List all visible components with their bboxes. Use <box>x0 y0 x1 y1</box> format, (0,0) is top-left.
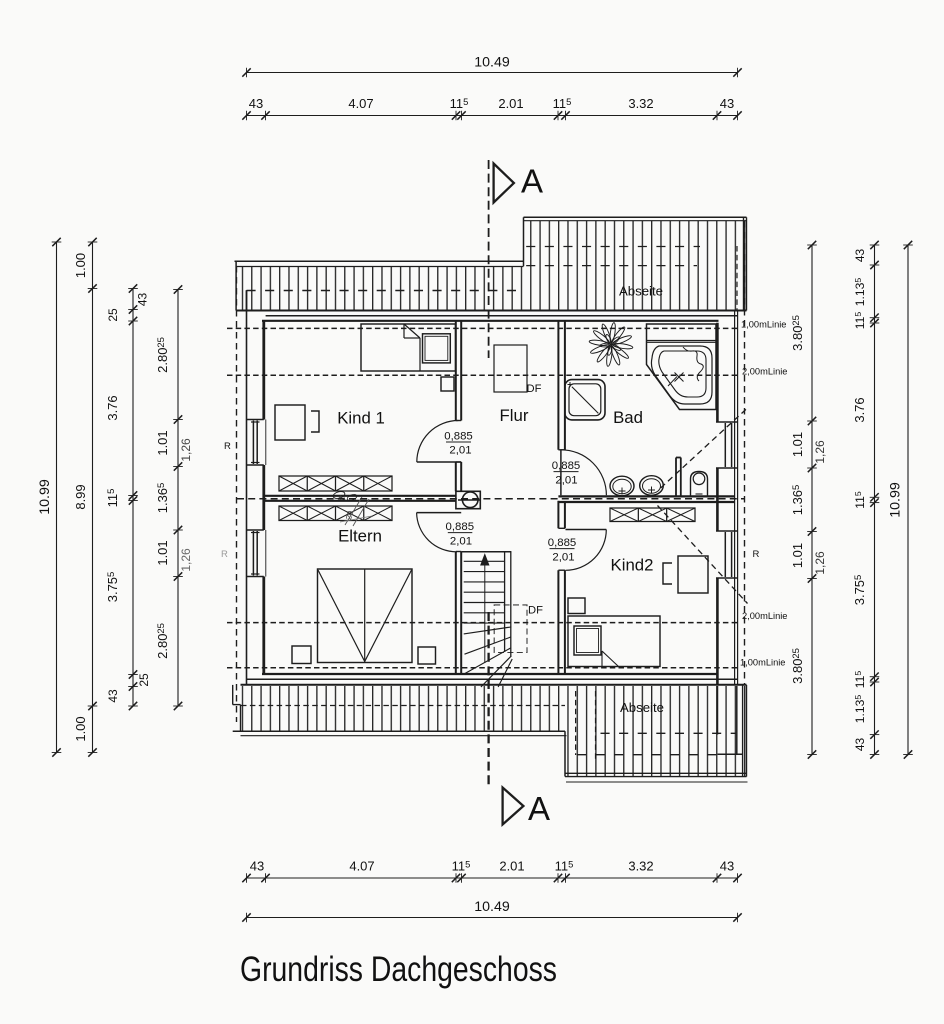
svg-text:1,00mLinie: 1,00mLinie <box>740 658 785 668</box>
svg-text:1,26: 1,26 <box>813 551 827 575</box>
svg-text:2,01: 2,01 <box>450 535 472 547</box>
svg-text:0,885: 0,885 <box>446 521 475 533</box>
svg-text:DF: DF <box>527 383 542 395</box>
svg-text:A: A <box>521 163 543 200</box>
svg-text:43: 43 <box>720 859 734 874</box>
svg-text:Grundriss Dachgeschoss: Grundriss Dachgeschoss <box>240 950 557 989</box>
svg-text:0,885: 0,885 <box>552 460 581 472</box>
svg-text:R: R <box>224 441 231 452</box>
svg-text:2.01: 2.01 <box>498 96 523 111</box>
svg-text:0,885: 0,885 <box>548 537 577 549</box>
svg-text:1.01: 1.01 <box>155 540 170 565</box>
svg-text:1.00: 1.00 <box>73 253 88 278</box>
svg-text:R: R <box>753 549 760 560</box>
svg-text:3.32: 3.32 <box>628 859 653 874</box>
svg-text:Flur: Flur <box>500 406 529 425</box>
svg-text:1.01: 1.01 <box>155 430 170 455</box>
svg-text:43: 43 <box>250 859 264 874</box>
svg-text:Bad: Bad <box>613 408 643 427</box>
svg-text:25: 25 <box>137 673 151 687</box>
svg-text:25: 25 <box>106 308 120 322</box>
svg-text:DF: DF <box>528 605 543 617</box>
svg-text:43: 43 <box>249 96 263 111</box>
svg-text:10.49: 10.49 <box>474 55 510 71</box>
svg-text:1,00mLinie: 1,00mLinie <box>741 320 786 330</box>
svg-text:1,26: 1,26 <box>813 440 827 464</box>
svg-text:1.01: 1.01 <box>790 543 805 568</box>
svg-text:2.01: 2.01 <box>499 859 524 874</box>
svg-text:A: A <box>528 790 550 827</box>
svg-text:2,01: 2,01 <box>552 551 574 563</box>
svg-text:43: 43 <box>853 249 867 263</box>
svg-text:1.00: 1.00 <box>73 716 88 741</box>
svg-text:2,00mLinie: 2,00mLinie <box>742 611 787 621</box>
svg-text:43: 43 <box>136 293 150 307</box>
svg-text:0,885: 0,885 <box>444 431 473 443</box>
svg-text:10.99: 10.99 <box>888 482 904 518</box>
svg-text:43: 43 <box>853 738 867 752</box>
svg-text:43: 43 <box>106 689 120 703</box>
svg-text:43: 43 <box>720 96 734 111</box>
svg-text:2,01: 2,01 <box>555 474 577 486</box>
svg-text:Eltern: Eltern <box>338 527 382 546</box>
svg-text:R: R <box>221 549 228 560</box>
svg-text:Abseite: Abseite <box>620 700 664 715</box>
svg-text:1,26: 1,26 <box>179 438 193 462</box>
svg-text:10.99: 10.99 <box>37 479 53 515</box>
svg-text:2,01: 2,01 <box>449 445 471 457</box>
svg-text:10.49: 10.49 <box>474 899 510 915</box>
svg-text:Kind 1: Kind 1 <box>337 409 385 428</box>
svg-text:8.99: 8.99 <box>73 484 88 509</box>
svg-text:4.07: 4.07 <box>348 96 373 111</box>
svg-text:3.76: 3.76 <box>105 395 120 420</box>
svg-text:1.01: 1.01 <box>790 432 805 457</box>
svg-text:4.07: 4.07 <box>349 859 374 874</box>
svg-text:1,26: 1,26 <box>179 548 193 572</box>
svg-text:Kind2: Kind2 <box>611 556 654 575</box>
svg-text:3.76: 3.76 <box>852 397 867 422</box>
svg-text:Abseite: Abseite <box>619 284 663 299</box>
svg-text:3.32: 3.32 <box>628 96 653 111</box>
svg-text:2,00mLinie: 2,00mLinie <box>742 367 787 377</box>
